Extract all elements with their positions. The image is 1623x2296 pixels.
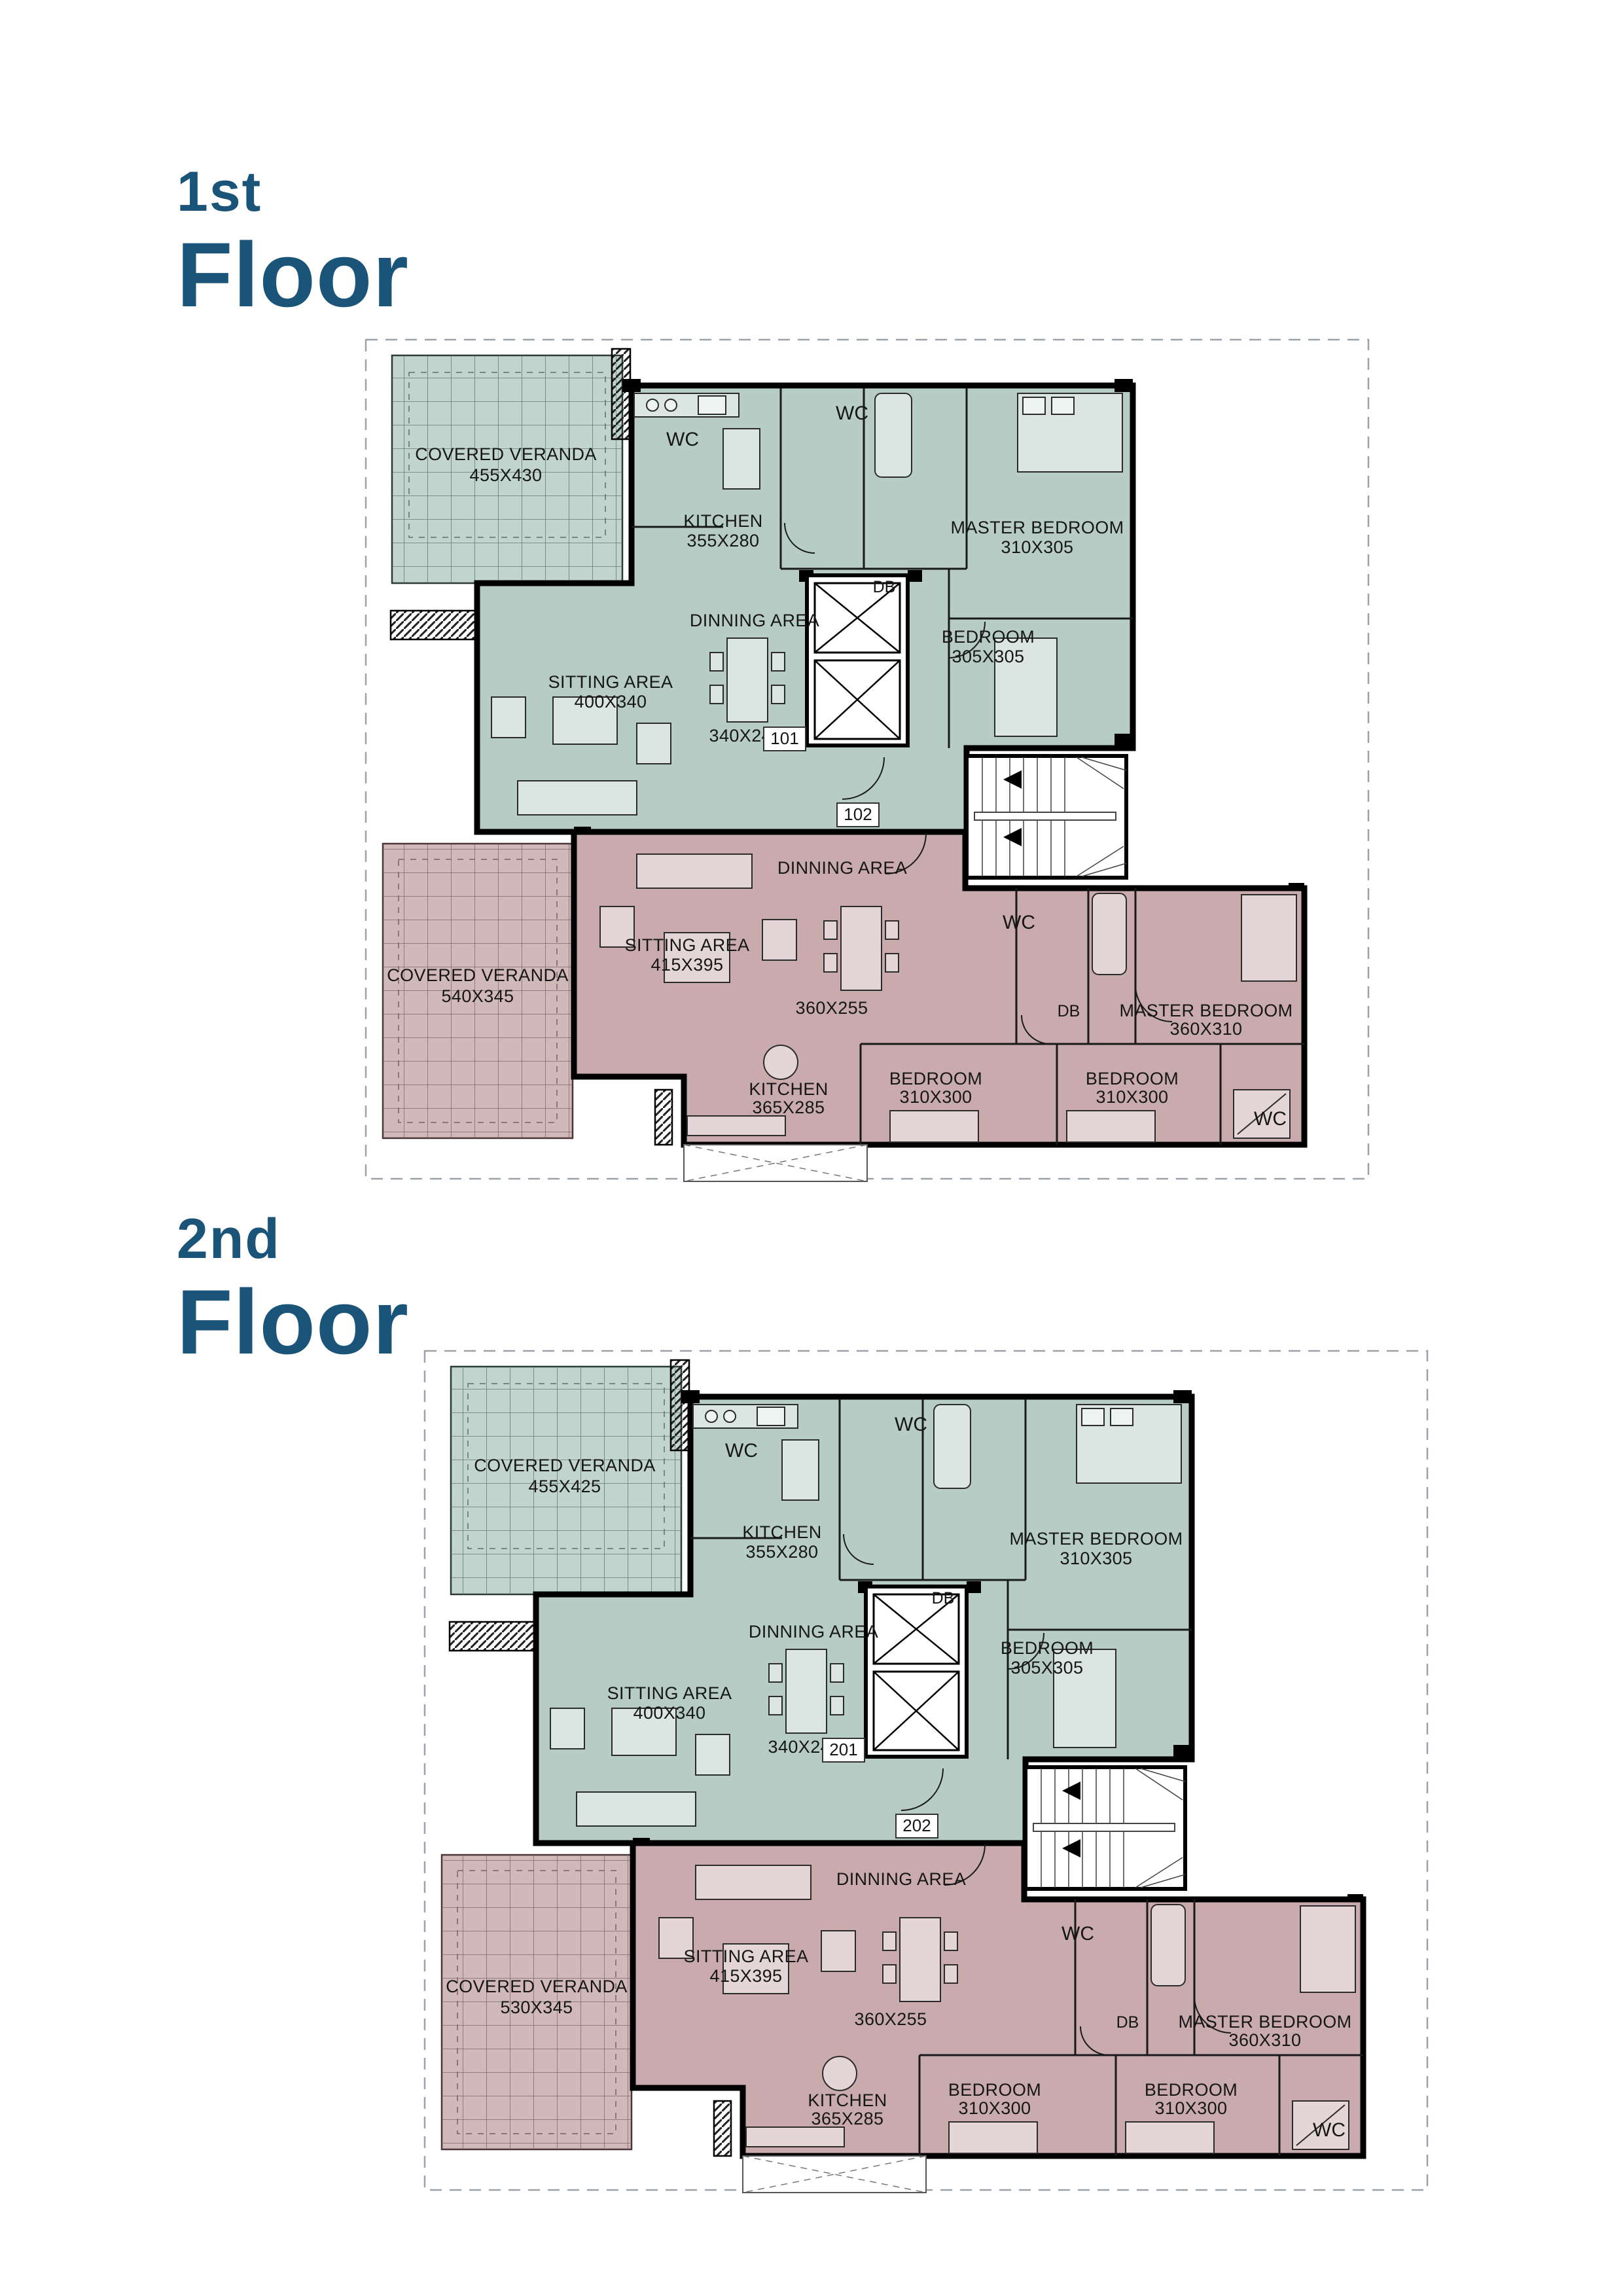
wall-hatch-icon	[391, 611, 476, 639]
room-label-bedroom-a: BEDROOM	[1001, 1638, 1094, 1658]
room-dims-veranda-a: 455X425	[529, 1477, 601, 1496]
floor-2-plan: COVERED VERANDA 455X425 KITCHEN 355X280 …	[416, 1342, 1436, 2199]
unit-badge-b: 102	[837, 803, 879, 827]
room-dims-sitting-a: 400X340	[575, 692, 647, 711]
wall-hatch-icon	[671, 1360, 689, 1450]
floor-1-title: 1st Floor	[177, 164, 409, 321]
room-dims-sitting-a: 400X340	[633, 1703, 706, 1723]
room-label-dinning-a: DINNING AREA	[690, 611, 819, 630]
room-label-wc-a1: WC	[725, 1440, 758, 1462]
room-dims-bedroom2-b: 310X300	[1155, 2098, 1228, 2118]
label-db-b: DB	[1058, 1002, 1080, 1020]
wall-hatch-icon	[714, 2101, 731, 2156]
room-dims-veranda-b: 530X345	[501, 1998, 573, 2017]
floor-1-plan: COVERED VERANDA 455X430 KITCHEN 355X280 …	[357, 331, 1378, 1188]
room-label-kitchen-b: KITCHEN	[808, 2090, 887, 2110]
room-label-sitting-a: SITTING AREA	[607, 1683, 732, 1703]
unit-number-a: 201	[829, 1740, 857, 1759]
room-label-wc-b1: WC	[1061, 1923, 1094, 1945]
room-dims-veranda-a: 455X430	[470, 465, 543, 485]
room-dims-kitchen-b: 365X285	[811, 2109, 884, 2128]
room-label-veranda-a: COVERED VERANDA	[474, 1456, 656, 1475]
room-label-dinning-b: DINNING AREA	[836, 1869, 966, 1889]
floor-2-title: 2nd Floor	[177, 1211, 409, 1368]
wall-hatch-icon	[450, 1622, 535, 1651]
room-label-master-a: MASTER BEDROOM	[950, 518, 1124, 537]
floor-1-title-word: Floor	[177, 229, 409, 321]
room-dims-sitting-b: 415X395	[651, 955, 724, 975]
room-dims-master-b: 360X310	[1170, 1019, 1243, 1039]
unit-number-b: 102	[844, 804, 872, 824]
room-dims-dinning-b: 360X255	[796, 998, 868, 1018]
floor-2-title-ordinal: 2nd	[177, 1211, 409, 1267]
unit-number-a: 101	[770, 728, 798, 748]
room-label-bedroom-a: BEDROOM	[942, 627, 1035, 647]
floor-1-plan-svg: COVERED VERANDA 455X430 KITCHEN 355X280 …	[357, 331, 1378, 1188]
room-label-master-a: MASTER BEDROOM	[1009, 1529, 1183, 1549]
unit-badge-a: 101	[764, 727, 806, 751]
room-dims-veranda-b: 540X345	[442, 986, 514, 1006]
room-label-bedroom2-b: BEDROOM	[1145, 2080, 1238, 2100]
elevator-icon	[866, 1587, 967, 1757]
room-dims-master-a: 310X305	[1060, 1549, 1133, 1568]
label-db-a: DB	[932, 1589, 955, 1607]
room-label-kitchen-a: KITCHEN	[683, 511, 762, 531]
room-label-wc-a1: WC	[666, 429, 699, 450]
room-dims-kitchen-b: 365X285	[753, 1098, 825, 1117]
room-dims-bedroom1-b: 310X300	[959, 2098, 1031, 2118]
room-label-dinning-a: DINNING AREA	[749, 1622, 878, 1641]
elevator-icon	[807, 575, 908, 745]
room-dims-bedroom-a: 305X305	[952, 647, 1025, 666]
balcony-outline	[743, 2156, 926, 2193]
unit-badge-b: 202	[896, 1814, 938, 1838]
label-db-a: DB	[873, 578, 896, 596]
room-label-kitchen-a: KITCHEN	[742, 1522, 821, 1542]
room-label-wc-a2: WC	[836, 403, 868, 424]
room-dims-sitting-b: 415X395	[710, 1966, 783, 1986]
room-label-veranda-a: COVERED VERANDA	[415, 444, 597, 464]
room-dims-master-a: 310X305	[1001, 537, 1074, 557]
wall-hatch-icon	[655, 1090, 672, 1145]
floor-2-plan-svg: COVERED VERANDA 455X425 KITCHEN 355X280 …	[416, 1342, 1436, 2199]
room-label-bedroom1-b: BEDROOM	[948, 2080, 1041, 2100]
room-label-master-b: MASTER BEDROOM	[1178, 2012, 1351, 2032]
room-dims-kitchen-a: 355X280	[746, 1542, 819, 1562]
stairs-icon	[1026, 1767, 1185, 1889]
unit-badge-a: 201	[823, 1738, 865, 1762]
page: { "document_type": "apartment floor plan…	[0, 0, 1623, 2296]
room-label-kitchen-b: KITCHEN	[749, 1079, 828, 1099]
room-dims-bedroom-a: 305X305	[1011, 1658, 1084, 1677]
room-dims-bedroom2-b: 310X300	[1096, 1087, 1169, 1107]
room-label-wc-b2: WC	[1313, 2119, 1346, 2141]
stairs-icon	[967, 756, 1126, 878]
room-label-wc-a2: WC	[895, 1414, 927, 1435]
floor-2-title-word: Floor	[177, 1276, 409, 1368]
floor-1-title-ordinal: 1st	[177, 164, 409, 220]
room-dims-kitchen-a: 355X280	[687, 531, 760, 550]
room-dims-bedroom1-b: 310X300	[900, 1087, 972, 1107]
room-label-sitting-a: SITTING AREA	[548, 672, 673, 692]
room-dims-dinning-b: 360X255	[855, 2009, 927, 2029]
room-label-sitting-b: SITTING AREA	[625, 935, 750, 955]
room-label-master-b: MASTER BEDROOM	[1119, 1001, 1293, 1020]
room-label-dinning-b: DINNING AREA	[777, 858, 907, 878]
room-label-bedroom1-b: BEDROOM	[889, 1069, 982, 1088]
room-label-wc-b2: WC	[1254, 1108, 1287, 1130]
room-label-wc-b1: WC	[1003, 912, 1035, 933]
room-label-bedroom2-b: BEDROOM	[1086, 1069, 1179, 1088]
label-db-b: DB	[1116, 2013, 1139, 2032]
wall-hatch-icon	[612, 349, 630, 439]
room-label-veranda-b: COVERED VERANDA	[387, 965, 569, 985]
balcony-outline	[684, 1145, 867, 1181]
room-label-veranda-b: COVERED VERANDA	[446, 1977, 628, 1996]
unit-number-b: 202	[902, 1816, 931, 1835]
room-dims-master-b: 360X310	[1229, 2030, 1302, 2050]
room-label-sitting-b: SITTING AREA	[684, 1946, 809, 1966]
